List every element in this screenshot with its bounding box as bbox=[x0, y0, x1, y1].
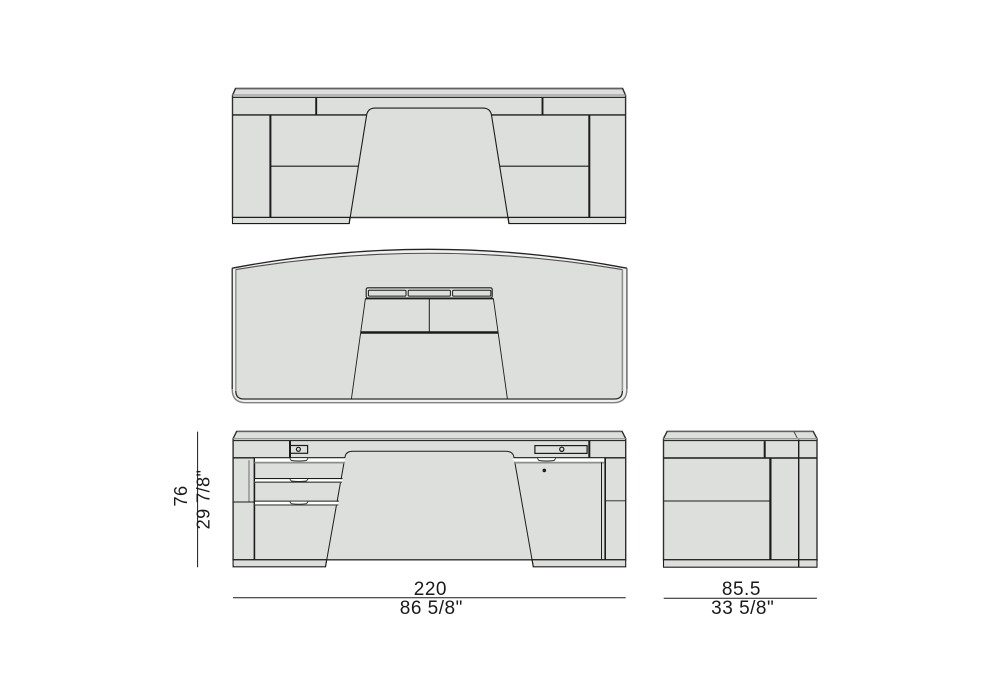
svg-text:85.5: 85.5 bbox=[722, 579, 761, 600]
svg-text:33 5/8": 33 5/8" bbox=[711, 598, 774, 619]
svg-text:220: 220 bbox=[414, 579, 447, 600]
svg-text:86 5/8": 86 5/8" bbox=[400, 598, 463, 619]
svg-text:29 7/8": 29 7/8" bbox=[194, 470, 214, 530]
svg-text:76: 76 bbox=[171, 485, 191, 506]
